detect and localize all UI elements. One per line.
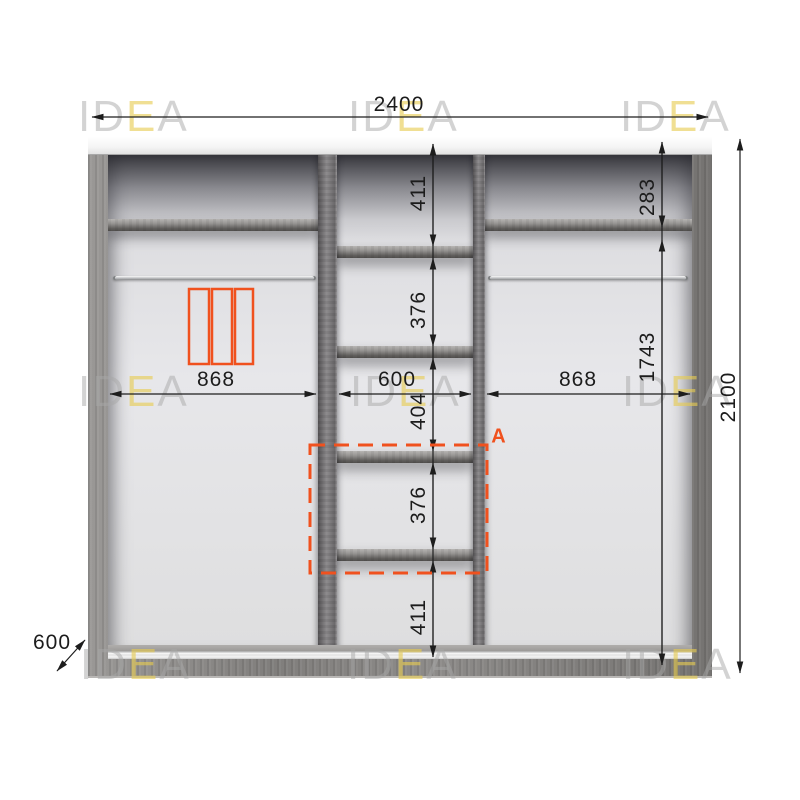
dim-label-total-width: 2400 [374,93,425,117]
dim-label-411-top: 411 [407,175,431,211]
wardrobe-dimension-drawing: IDEA IDEA IDEA IDEA IDEA IDEA IDEA IDEA … [0,0,800,800]
dim-label-376-upper: 376 [407,291,431,329]
dim-label-left-width: 868 [197,368,235,392]
dim-label-376-lower: 376 [407,486,431,524]
dim-label-1743: 1743 [636,332,660,383]
section-a-marker: A [491,426,506,449]
door-icon-panel [212,289,232,364]
section-a-dashed-outline [310,445,487,573]
dimension-linework [0,0,800,800]
dim-label-411-bottom: 411 [407,599,431,635]
wardrobe-3-door-icon [189,289,253,364]
door-icon-panel [235,289,253,364]
door-icon-panel [189,289,209,364]
dim-label-283: 283 [636,178,660,216]
dim-label-depth: 600 [33,631,71,655]
dim-label-404: 404 [407,392,431,430]
dim-label-right-width: 868 [559,368,597,392]
dim-label-total-height: 2100 [717,372,741,423]
dim-label-center-width: 600 [378,368,416,392]
